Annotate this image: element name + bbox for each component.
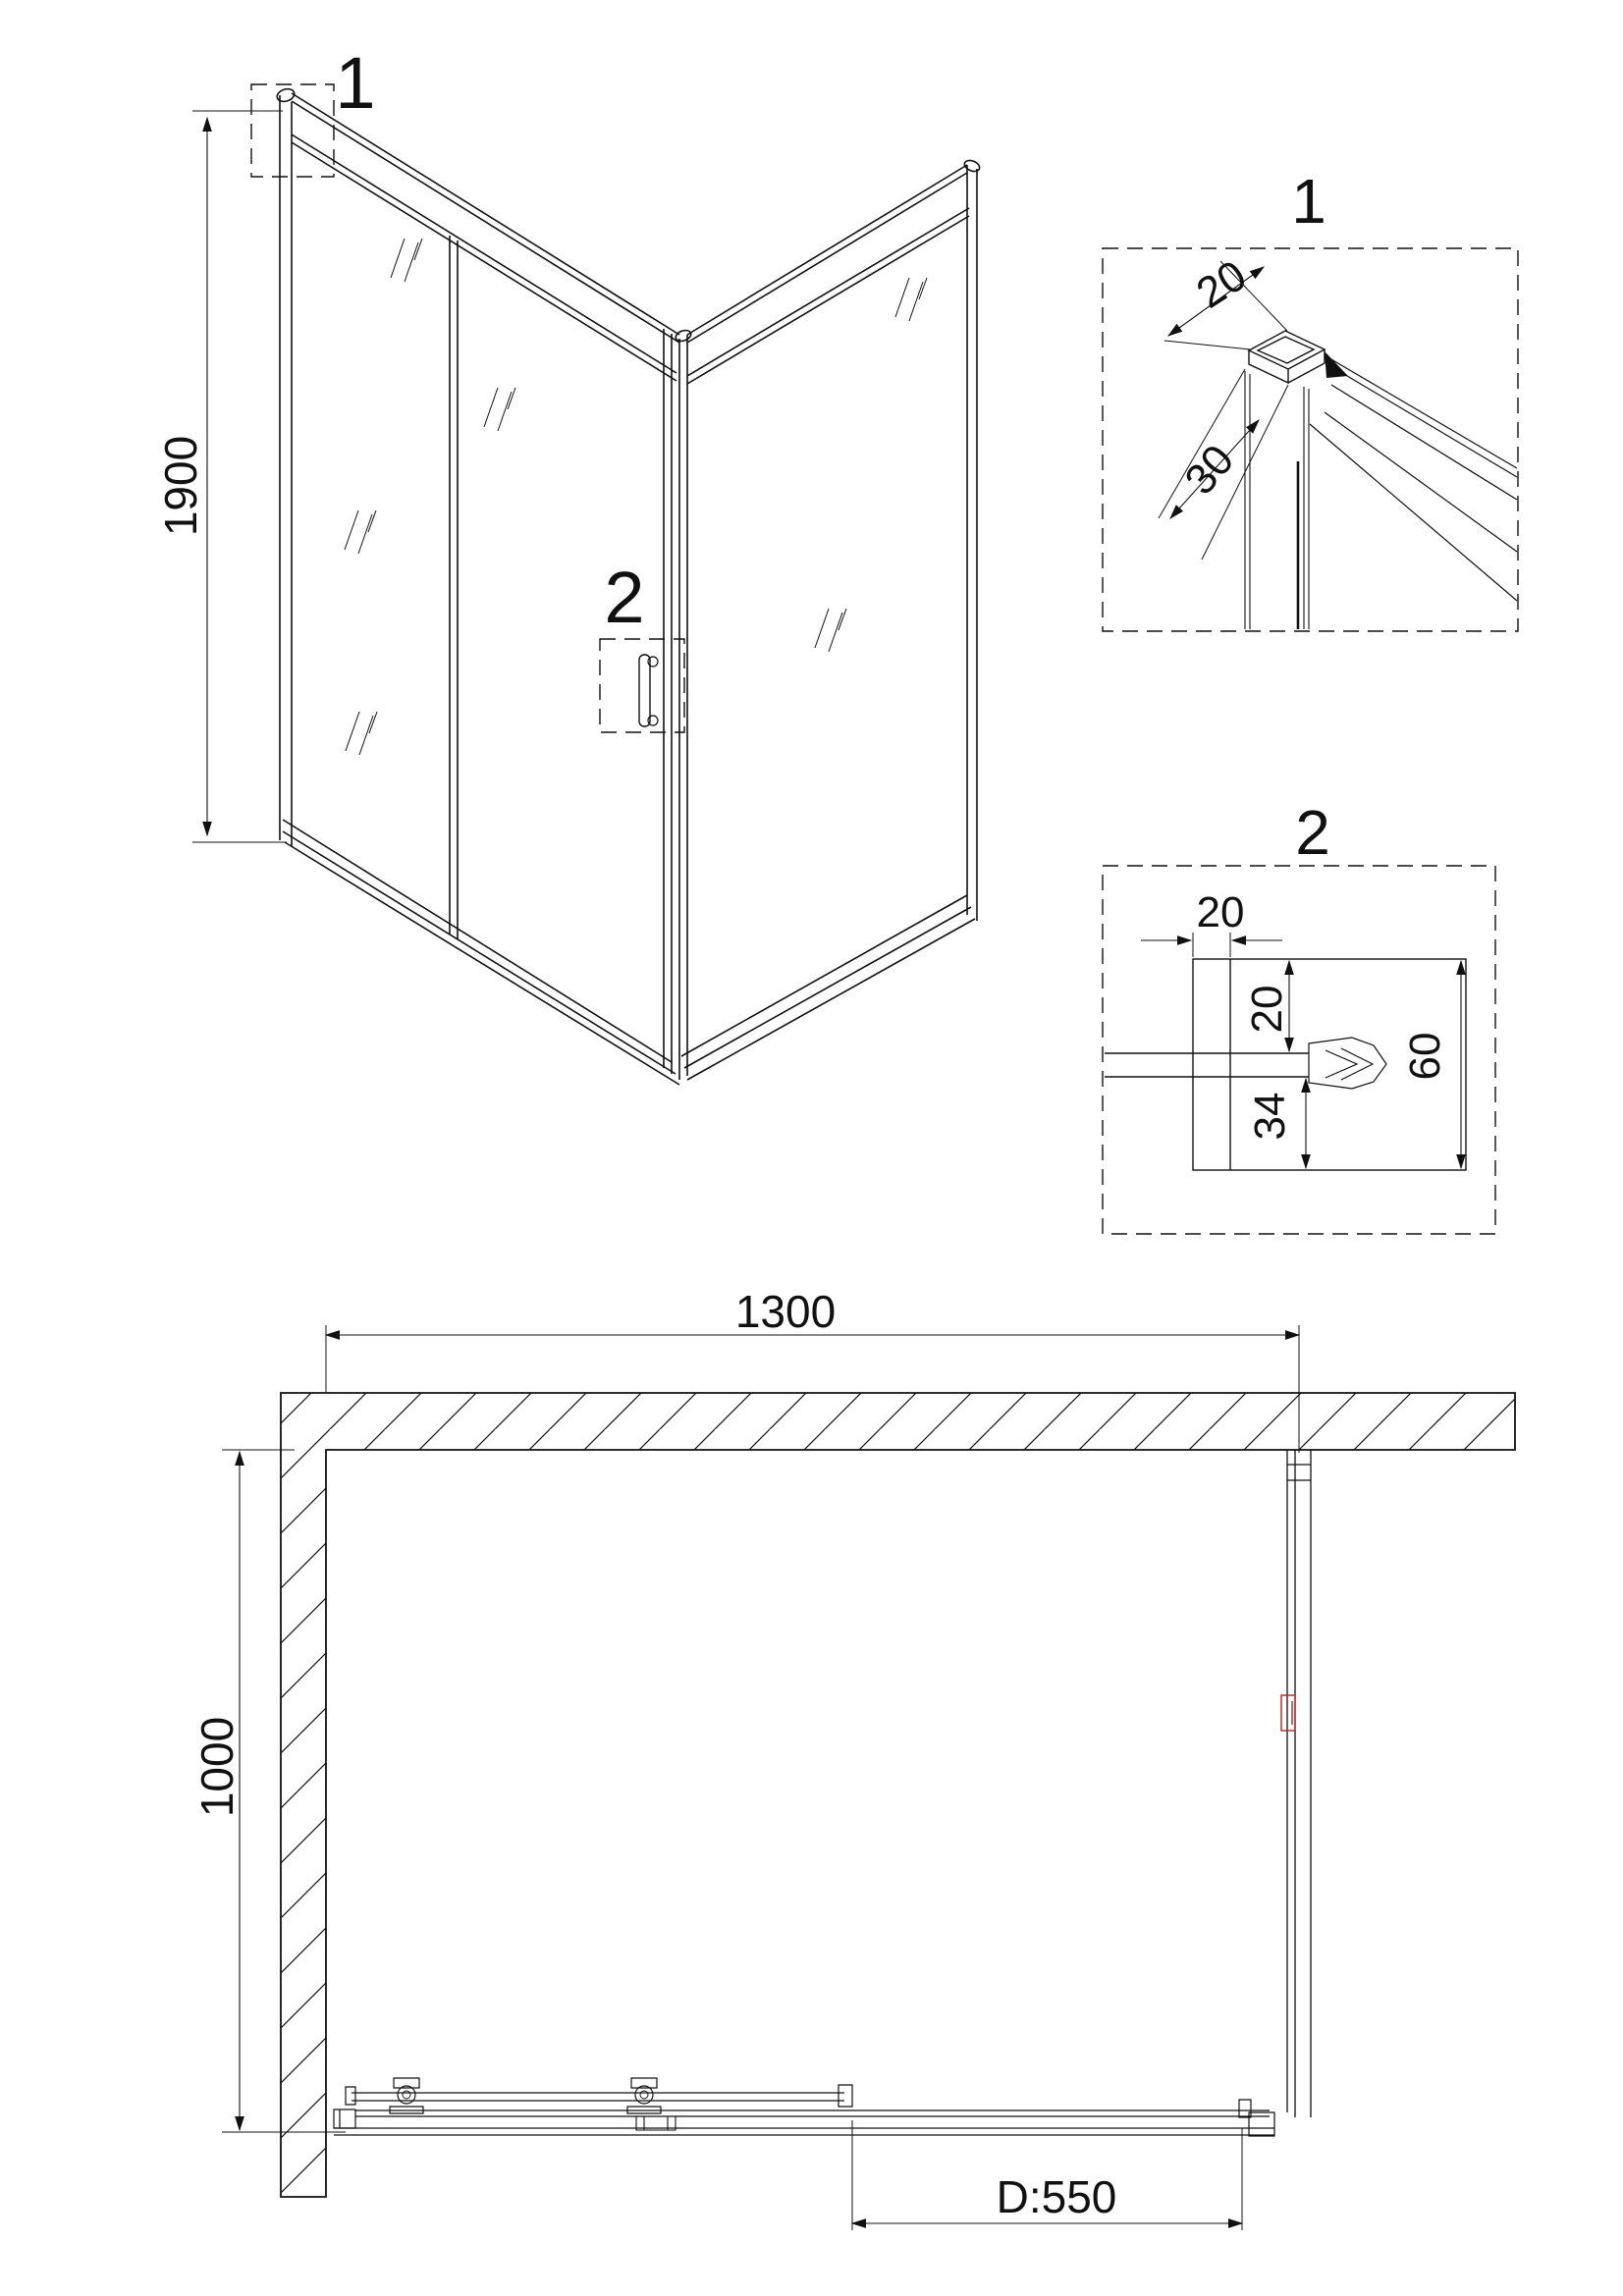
plan-sliding-door-glass xyxy=(352,2093,844,2101)
door-header-rail xyxy=(292,93,679,381)
technical-drawing: 1 2 1900 1 20 30 xyxy=(0,0,1623,2296)
side-panel-stile-cap xyxy=(963,158,982,173)
iso-view xyxy=(192,84,981,1085)
plan-bottom-frame xyxy=(334,2128,1274,2135)
side-panel-top-rail xyxy=(687,165,969,384)
door-right-stile xyxy=(664,329,672,1074)
detail-2-glass xyxy=(1105,1053,1309,1077)
detail-2-label: 2 xyxy=(1295,797,1330,868)
plan-dim550-text: D:550 xyxy=(997,2171,1117,2222)
plan-fixed-glass xyxy=(355,2110,1270,2116)
plan-roller-brackets xyxy=(390,2078,661,2113)
plan-dim1300-text: 1300 xyxy=(735,1286,836,1337)
door-handle xyxy=(639,655,650,726)
callout-handle-label: 2 xyxy=(604,557,644,638)
plan-sliding-door-end-caps xyxy=(346,2085,852,2107)
plan-side-panel xyxy=(1287,1450,1311,2117)
detail-2-seal-chevrons xyxy=(1325,1048,1373,1080)
detail-1-tube-profile xyxy=(1249,331,1325,383)
side-panel-bottom-rail xyxy=(681,895,975,1080)
plan-wall xyxy=(281,1393,1515,2197)
detail-1-rail-lines xyxy=(1310,355,1517,601)
drawing-sheet: 1 2 1900 1 20 30 xyxy=(0,0,1623,2296)
detail-1 xyxy=(1103,248,1518,631)
plan-corner-bracket xyxy=(1239,2100,1274,2136)
detail-2-dim20v-text: 20 xyxy=(1243,986,1291,1034)
plan-dim1000-text: 1000 xyxy=(191,1717,243,1817)
detail-2-seal-outline xyxy=(1309,1038,1386,1089)
door-middle-divider xyxy=(450,236,458,939)
detail-1-box xyxy=(1103,248,1518,631)
detail-2-dim20w-text: 20 xyxy=(1197,888,1245,936)
plan-roller-hub-right xyxy=(640,2091,648,2099)
callout-frame-label: 1 xyxy=(335,42,375,124)
detail-1-dim30-text: 30 xyxy=(1175,436,1243,504)
plan-wall-profile-left xyxy=(334,2109,355,2128)
side-panel-rear-stile xyxy=(967,165,977,921)
detail-1-label: 1 xyxy=(1291,166,1326,237)
door-left-stile xyxy=(280,95,292,846)
door-bottom-rail xyxy=(283,820,679,1085)
plan-view xyxy=(222,1325,1515,2230)
plan-red-profile-outline xyxy=(1281,1695,1295,1731)
iso-height-dim-text: 1900 xyxy=(155,436,206,536)
corner-post xyxy=(679,335,687,1080)
iso-height-dim-extensions xyxy=(192,111,287,842)
plan-red-profile-marker xyxy=(1281,1695,1295,1731)
plan-roller-hub-left xyxy=(403,2091,410,2099)
detail-2-dim60-text: 60 xyxy=(1401,1033,1449,1081)
detail-1-dim20-text: 20 xyxy=(1188,251,1255,318)
detail-2-dim34-text: 34 xyxy=(1246,1093,1294,1141)
